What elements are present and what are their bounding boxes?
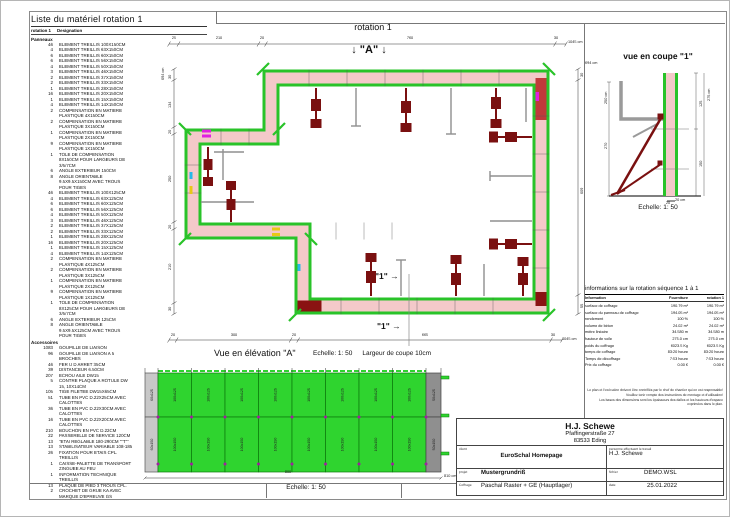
worker-cell: personne effectuant le travail H.J. Sche… bbox=[607, 446, 723, 468]
dim-label: 20 bbox=[653, 201, 683, 205]
material-qty: 1 bbox=[31, 152, 53, 169]
company-city: 83533 Eding bbox=[457, 438, 723, 445]
material-designation: ANGLE ORIENTABLE 9.5X9.5X150CM AVEC TROU… bbox=[59, 174, 133, 191]
material-qty: 8 bbox=[31, 322, 53, 339]
fold-mark-2 bbox=[401, 483, 402, 498]
rotation-info-table: informations sur la rotation séquence 1 … bbox=[585, 286, 724, 369]
material-designation: GOUPILLE DE LIAISON A 5 BROCHES bbox=[59, 351, 133, 362]
info-label: rendement bbox=[585, 317, 648, 322]
panel-label: 100x150 bbox=[207, 438, 211, 452]
info-row: Prix du coffrage0.00 €0.00 € bbox=[585, 362, 724, 369]
material-designation: COMPENSATION EN MATIERE PLASTIQUE 2X150C… bbox=[59, 130, 133, 141]
panel-label: 100x150 bbox=[341, 438, 345, 452]
panel-label: 100x150 bbox=[240, 438, 244, 452]
material-designation: CAISSE-PALETTE DE TRANSPORT ZINGUEE AU F… bbox=[59, 461, 133, 472]
project-value: Mustergrundriß bbox=[481, 470, 604, 476]
formwork-pin bbox=[441, 376, 449, 379]
info-table-title: informations sur la rotation séquence 1 … bbox=[585, 286, 724, 295]
material-designation: CROCHET DE GRUE KA AVEC MARQUE D'EPREUVE… bbox=[59, 488, 133, 499]
material-qty: 1 bbox=[31, 461, 53, 472]
dim-label: 1045 cm bbox=[562, 337, 577, 341]
tie-dot bbox=[358, 416, 361, 419]
tie-dot bbox=[425, 416, 428, 419]
material-designation: COMPENSATION EN MATIERE PLASTIQUE 2X125C… bbox=[59, 278, 133, 289]
plan-title: rotation 1 bbox=[323, 22, 423, 32]
material-qty: 5 bbox=[31, 378, 53, 389]
tie-dot bbox=[291, 463, 294, 466]
material-qty: 36 bbox=[31, 406, 53, 417]
dim-label: 760 bbox=[395, 36, 425, 40]
info-row: hauteur de voile275.0 cm275.0 cm bbox=[585, 336, 724, 343]
stabilizer-braces bbox=[204, 88, 532, 296]
info-fourniture: 83:20 heure bbox=[648, 350, 688, 355]
dim-label: 20 bbox=[279, 333, 309, 337]
dim-label: 1045 cm bbox=[568, 40, 583, 44]
info-fourniture: 100 % bbox=[648, 317, 688, 322]
tie-dot bbox=[391, 416, 394, 419]
stabilizer-brace-section bbox=[611, 114, 663, 195]
dim-label: 270 bbox=[604, 143, 608, 149]
work-platform-bracket bbox=[621, 81, 663, 119]
material-qty: 8 bbox=[31, 174, 53, 191]
material-qty: 1 bbox=[31, 472, 53, 483]
panel-label: 100x150 bbox=[173, 438, 177, 452]
material-qty: 2 bbox=[31, 256, 53, 267]
wall-section bbox=[663, 73, 678, 196]
props bbox=[201, 88, 532, 296]
info-rotation1: 7:53 heure bbox=[688, 357, 724, 362]
material-list-title: Liste du matériel rotation 1 bbox=[31, 14, 207, 27]
material-designation: TOLE DE COMPENSATION 8X150CM POUR LARGEU… bbox=[59, 152, 133, 169]
dim-label: 55 bbox=[580, 304, 584, 308]
dim-label: 30 bbox=[541, 36, 571, 40]
formwork-pin bbox=[441, 414, 449, 417]
info-label: Temps de décoffrage bbox=[585, 357, 648, 362]
coupe-drawing bbox=[601, 61, 726, 211]
panel-label: 100x125 bbox=[274, 388, 278, 402]
info-fourniture: 6023.5 Kg bbox=[648, 344, 688, 349]
info-rotation1: 24.02 m³ bbox=[688, 324, 724, 329]
title-block: H.J. Schewe Pfaffingerstraße 27 83533 Ed… bbox=[456, 418, 724, 496]
material-designation: TUBE EN PVC D.22X30CM AVEC CALOTTES bbox=[59, 406, 133, 417]
worker-value: H.J. Schewe bbox=[609, 451, 721, 457]
tie-dot bbox=[324, 416, 327, 419]
tie-dot bbox=[190, 463, 193, 466]
info-fourniture: 34.580 m bbox=[648, 330, 688, 335]
project-cell: projet Mustergrundriß bbox=[457, 469, 607, 481]
elevation-scale-note: Echelle: 1: 50Largeur de coupe 10cm bbox=[313, 350, 431, 357]
panel-label: 100x125 bbox=[173, 388, 177, 402]
info-label: temps de coffrage bbox=[585, 350, 648, 355]
file-value: DEMO.WSL bbox=[644, 470, 721, 476]
info-row: temps de coffrage83:20 heure83:20 heure bbox=[585, 349, 724, 356]
material-designation: CONTRE PLAQUE A ROTULE DW 15, 10X14CM bbox=[59, 378, 133, 389]
info-col-information: Information bbox=[585, 296, 648, 301]
dim-label: 30 bbox=[580, 73, 584, 77]
coupe-echelle: Echelle: 1: 50 bbox=[601, 204, 715, 211]
coupe-title: vue en coupe "1" bbox=[601, 51, 715, 61]
dim-label: 609 bbox=[580, 188, 584, 194]
material-designation: ANGLE ORIENTABLE 9.5X9.5X125CM AVEC TROU… bbox=[59, 322, 133, 339]
material-designation: INFORMATION TECHNIQUE TREILLIS bbox=[59, 472, 133, 483]
material-designation: TUBE EN PVC D.22X25CM AVEC CALOTTES bbox=[59, 395, 133, 406]
formwork-pin bbox=[441, 452, 449, 455]
info-rotation1: 194.05 m² bbox=[688, 311, 724, 316]
info-rotation1: 190.79 m² bbox=[688, 304, 724, 309]
info-label: mètre linéaire bbox=[585, 330, 648, 335]
dim-label: 30 bbox=[168, 75, 172, 79]
tie-dot bbox=[358, 463, 361, 466]
plan-drawing bbox=[166, 34, 586, 349]
material-qty: 51 bbox=[31, 395, 53, 406]
panel-label: 60x125 bbox=[150, 389, 154, 401]
company-name: H.J. Schewe bbox=[457, 421, 723, 431]
dim-label: 250 cm bbox=[604, 92, 608, 104]
info-label: poids du coffrage bbox=[585, 344, 648, 349]
dim-label: 210 bbox=[168, 264, 172, 270]
material-qty: 9 bbox=[31, 289, 53, 300]
material-qty: 96 bbox=[31, 351, 53, 362]
panel-label: 100x125 bbox=[207, 388, 211, 402]
dim-label: 25 bbox=[159, 36, 189, 40]
file-label: fichier bbox=[609, 470, 618, 474]
panel-label: 100x150 bbox=[274, 438, 278, 452]
dimension-lines bbox=[168, 42, 581, 343]
dim-label: 665 bbox=[410, 333, 440, 337]
elevation-drawing: 60x12560x150100x125100x150100x125100x150… bbox=[141, 367, 451, 483]
dim-label: 20 bbox=[247, 36, 277, 40]
material-qty: 16 bbox=[31, 417, 53, 428]
info-row: rendement100 %100 % bbox=[585, 316, 724, 323]
frame-top-line bbox=[216, 23, 725, 24]
material-list-col-designation: Designation bbox=[57, 28, 207, 33]
panel-label: 100x125 bbox=[307, 388, 311, 402]
drawing-sheet: Liste du matériel rotation 1 rotation 1 … bbox=[0, 0, 730, 517]
info-row: Temps de décoffrage7:53 heure7:53 heure bbox=[585, 356, 724, 363]
date-cell: date 25.01.2022 bbox=[607, 482, 723, 495]
material-designation: TOLE DE COMPENSATION 8X125CM POUR LARGEU… bbox=[59, 300, 133, 317]
panel-label: 100x150 bbox=[374, 438, 378, 452]
material-designation: FIXATION POUR ETAIS CPL. TREILLIS bbox=[59, 450, 133, 461]
info-rotation1: 100 % bbox=[688, 317, 724, 322]
coffrage-cell: Coffrage Paschal Raster + GE (Hauptlager… bbox=[457, 482, 607, 495]
info-label: surface de coffrage bbox=[585, 304, 648, 309]
date-value: 25.01.2022 bbox=[647, 483, 721, 489]
tie-dot bbox=[257, 416, 260, 419]
dim-label: 300 bbox=[219, 333, 249, 337]
info-rotation1: 6023.5 Kg bbox=[688, 344, 724, 349]
tie-dot bbox=[291, 416, 294, 419]
panel-label: 100x125 bbox=[374, 388, 378, 402]
material-qty: 1 bbox=[31, 300, 53, 317]
material-row: 2CROCHET DE GRUE KA AVEC MARQUE D'EPREUV… bbox=[31, 488, 207, 499]
info-fourniture: 0.00 € bbox=[648, 363, 688, 368]
material-designation: COMPENSATION EN MATIERE PLASTIQUE 4X150C… bbox=[59, 108, 133, 119]
dim-label: 694 cm bbox=[585, 61, 597, 65]
tie-dot bbox=[190, 416, 193, 419]
info-rotation1: 83:20 heure bbox=[688, 350, 724, 355]
title-block-header: H.J. Schewe Pfaffingerstraße 27 83533 Ed… bbox=[457, 419, 723, 446]
tie-dot bbox=[224, 416, 227, 419]
info-row: surface du panneau de coffrage194.05 m²1… bbox=[585, 310, 724, 317]
frame-divider-top bbox=[216, 11, 217, 23]
tie-dot bbox=[157, 463, 160, 466]
info-fourniture: 7:53 heure bbox=[648, 357, 688, 362]
info-rotation1: 34.580 m bbox=[688, 330, 724, 335]
client-cell: client EuroSchal Homepage bbox=[457, 446, 607, 468]
material-qty: 26 bbox=[31, 450, 53, 461]
coffrage-label: Coffrage bbox=[459, 483, 472, 487]
tie-dot bbox=[391, 463, 394, 466]
dim-label: 134 bbox=[168, 102, 172, 108]
material-designation: TUBE EN PVC D.22X20CM AVEC CALOTTES bbox=[59, 417, 133, 428]
material-qty: 2 bbox=[31, 108, 53, 119]
info-col-rotation1: rotation 1 bbox=[688, 296, 724, 301]
dim-label: 810 cm bbox=[444, 474, 456, 478]
elevation-echelle-top: Echelle: 1: 50 bbox=[313, 350, 352, 357]
tie-dot bbox=[425, 463, 428, 466]
material-designation: COMPENSATION EN MATIERE PLASTIQUE 1X150C… bbox=[59, 141, 133, 152]
client-value: EuroSchal Homepage bbox=[459, 453, 604, 459]
info-fourniture: 275.0 cm bbox=[648, 337, 688, 342]
dim-label: 125 bbox=[699, 101, 703, 107]
material-qty: 1 bbox=[31, 278, 53, 289]
material-list-col-qty: rotation 1 bbox=[31, 28, 57, 33]
info-col-fourniture: Fourniture bbox=[648, 296, 688, 301]
info-fourniture: 190.79 m² bbox=[648, 304, 688, 309]
info-row: mètre linéaire34.580 m34.580 m bbox=[585, 329, 724, 336]
dim-label: 150 bbox=[699, 161, 703, 167]
info-label: hauteur de voile bbox=[585, 337, 648, 342]
tie-dot bbox=[257, 463, 260, 466]
material-designation: COMPENSATION EN MATIERE PLASTIQUE 3X125C… bbox=[59, 267, 133, 278]
elevation-echelle-bottom: Echelle: 1: 50 bbox=[226, 484, 386, 491]
panel-label: 60x150 bbox=[150, 439, 154, 451]
material-qty: 9 bbox=[31, 141, 53, 152]
material-designation: COMPENSATION EN MATIERE PLASTIQUE 3X150C… bbox=[59, 119, 133, 130]
dim-label: 20 cm bbox=[675, 198, 685, 202]
panel-label: 50x150 bbox=[432, 439, 436, 451]
info-label: Prix du coffrage bbox=[585, 363, 648, 368]
panel-label: 100x125 bbox=[341, 388, 345, 402]
info-fourniture: 194.05 m² bbox=[648, 311, 688, 316]
dim-label: 20 bbox=[168, 130, 172, 134]
info-label: surface du panneau de coffrage bbox=[585, 311, 648, 316]
material-qty: 2 bbox=[31, 267, 53, 278]
material-designation: COMPENSATION EN MATIERE PLASTIQUE 4X125C… bbox=[59, 256, 133, 267]
elevation-largeur: Largeur de coupe 10cm bbox=[362, 350, 431, 357]
disclaimer-line: Les bases des dimensions sont les épaiss… bbox=[585, 398, 723, 408]
compensation-pieces bbox=[190, 92, 540, 271]
dim-label: 275 cm bbox=[707, 89, 711, 101]
dim-label: 694 cm bbox=[161, 68, 165, 80]
project-label: projet bbox=[459, 470, 467, 474]
info-rotation1: 275.0 cm bbox=[688, 337, 724, 342]
date-label: date bbox=[609, 483, 615, 487]
info-table-header: Information Fourniture rotation 1 bbox=[585, 296, 724, 303]
info-row: surface de coffrage190.79 m²190.79 m² bbox=[585, 303, 724, 310]
material-designation: COMPENSATION EN MATIERE PLASTIQUE 1X125C… bbox=[59, 289, 133, 300]
info-rotation1: 0.00 € bbox=[688, 363, 724, 368]
dim-label: 20 bbox=[168, 225, 172, 229]
client-label: client bbox=[459, 447, 604, 451]
dim-label: 800 bbox=[273, 470, 303, 474]
dim-label: 250 bbox=[168, 176, 172, 182]
dim-label: 30 bbox=[168, 307, 172, 311]
dim-label: 20 bbox=[158, 333, 188, 337]
panel-label: 100x150 bbox=[307, 438, 311, 452]
coffrage-value: Paschal Raster + GE (Hauptlager) bbox=[481, 483, 604, 489]
disclaimer: Le plan et l'exécution doivent être cont… bbox=[585, 388, 723, 407]
material-qty: 1 bbox=[31, 130, 53, 141]
info-table-rows: surface de coffrage190.79 m²190.79 m²sur… bbox=[585, 303, 724, 369]
material-row: 96GOUPILLE DE LIAISON A 5 BROCHES bbox=[31, 351, 207, 362]
panel-label: 100x125 bbox=[240, 388, 244, 402]
info-fourniture: 24.02 m³ bbox=[648, 324, 688, 329]
panel-label: 100x125 bbox=[408, 388, 412, 402]
file-cell: fichier DEMO.WSL bbox=[607, 469, 723, 481]
dim-label: 210 bbox=[204, 36, 234, 40]
panel-label: 50x125 bbox=[432, 389, 436, 401]
tie-dot bbox=[224, 463, 227, 466]
info-label: volume de béton bbox=[585, 324, 648, 329]
panel-label: 100x150 bbox=[408, 438, 412, 452]
tie-dot bbox=[157, 416, 160, 419]
info-row: volume de béton24.02 m³24.02 m³ bbox=[585, 323, 724, 330]
material-qty: 2 bbox=[31, 488, 53, 499]
material-qty: 2 bbox=[31, 119, 53, 130]
info-row: poids du coffrage6023.5 Kg6023.5 Kg bbox=[585, 343, 724, 350]
red-wall-patches bbox=[298, 78, 547, 312]
tie-dot bbox=[324, 463, 327, 466]
elevation-title: Vue en élévation "A" bbox=[214, 348, 296, 358]
